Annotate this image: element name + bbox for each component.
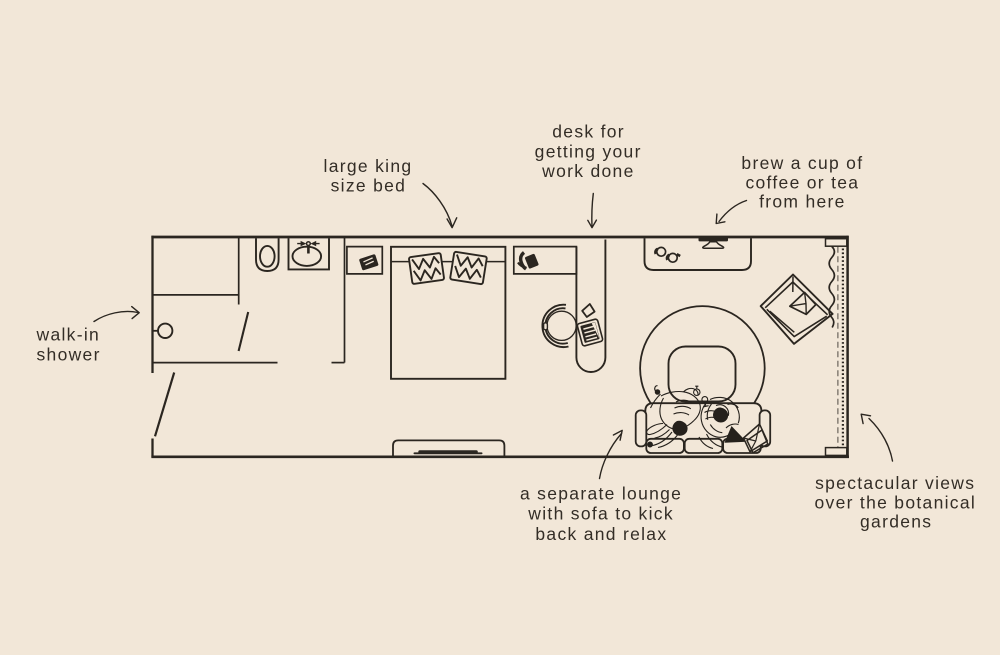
svg-text:with sofa to kick: with sofa to kick	[527, 504, 674, 524]
svg-text:getting your: getting your	[535, 141, 642, 161]
svg-text:over the botanical: over the botanical	[815, 492, 977, 512]
svg-text:desk for: desk for	[552, 122, 625, 142]
svg-text:shower: shower	[37, 345, 101, 365]
svg-text:back and relax: back and relax	[535, 524, 667, 544]
svg-text:spectacular views: spectacular views	[815, 473, 975, 493]
svg-text:large king: large king	[324, 156, 413, 176]
svg-text:brew a cup of: brew a cup of	[741, 153, 863, 173]
svg-text:a separate lounge: a separate lounge	[520, 483, 682, 503]
svg-text:work done: work done	[541, 161, 634, 181]
svg-text:gardens: gardens	[860, 512, 932, 532]
svg-text:size bed: size bed	[331, 175, 407, 195]
svg-text:from here: from here	[759, 192, 846, 212]
svg-text:walk-in: walk-in	[36, 325, 101, 345]
svg-text:coffee or tea: coffee or tea	[745, 172, 859, 192]
